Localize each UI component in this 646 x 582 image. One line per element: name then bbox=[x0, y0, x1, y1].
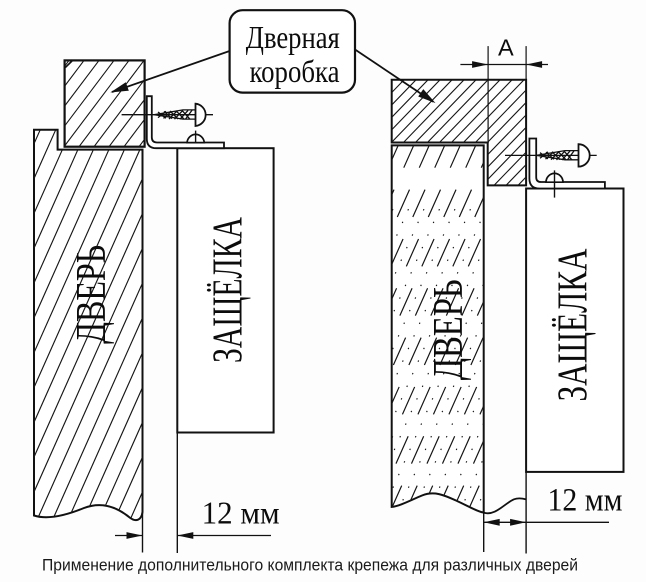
svg-text:Дверная: Дверная bbox=[246, 19, 340, 55]
svg-text:ДВЕРЬ: ДВЕРЬ bbox=[69, 245, 115, 344]
svg-text:ДВЕРЬ: ДВЕРЬ bbox=[426, 279, 472, 380]
svg-text:ЗАЩЁЛКА: ЗАЩЁЛКА bbox=[551, 248, 597, 401]
svg-text:А: А bbox=[498, 35, 514, 61]
svg-text:коробка: коробка bbox=[250, 53, 340, 89]
svg-text:ЗАЩЁЛКА: ЗАЩЁЛКА bbox=[205, 217, 251, 363]
svg-text:12 мм: 12 мм bbox=[548, 483, 623, 519]
svg-text:12 мм: 12 мм bbox=[202, 495, 280, 531]
svg-text:Применение дополнительного ком: Применение дополнительного комплекта кре… bbox=[42, 557, 578, 575]
